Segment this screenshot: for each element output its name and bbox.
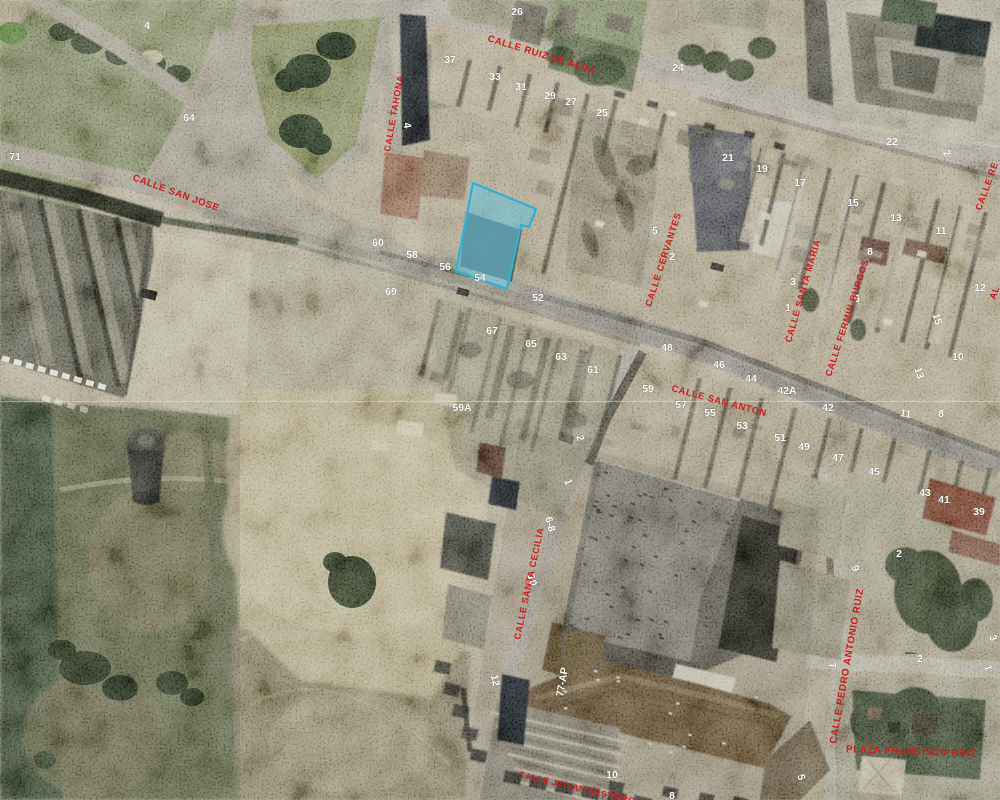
svg-text:46: 46 <box>713 360 725 371</box>
svg-text:41: 41 <box>938 495 950 506</box>
svg-text:21: 21 <box>722 153 734 164</box>
svg-text:39: 39 <box>973 507 985 518</box>
svg-text:1: 1 <box>785 303 791 314</box>
svg-text:22: 22 <box>886 137 898 148</box>
svg-text:59A: 59A <box>452 403 472 414</box>
svg-text:26: 26 <box>511 7 523 18</box>
svg-text:19: 19 <box>756 164 768 175</box>
svg-text:12: 12 <box>974 283 986 294</box>
svg-text:57: 57 <box>675 400 687 411</box>
svg-text:17: 17 <box>794 178 806 189</box>
svg-text:3: 3 <box>790 277 796 288</box>
svg-text:63: 63 <box>555 352 567 363</box>
svg-text:31: 31 <box>515 82 527 93</box>
svg-text:44: 44 <box>745 374 757 385</box>
svg-text:58: 58 <box>406 250 418 261</box>
svg-text:53: 53 <box>736 421 748 432</box>
svg-text:13: 13 <box>890 213 902 224</box>
svg-text:8: 8 <box>938 409 944 420</box>
svg-text:15: 15 <box>847 198 859 209</box>
svg-text:51: 51 <box>774 433 786 444</box>
svg-text:71: 71 <box>9 152 21 163</box>
svg-text:45: 45 <box>868 467 880 478</box>
svg-text:60: 60 <box>372 238 384 249</box>
svg-text:11: 11 <box>936 226 947 237</box>
svg-text:5: 5 <box>652 226 658 237</box>
svg-text:4: 4 <box>144 21 150 32</box>
svg-text:48: 48 <box>661 343 673 354</box>
svg-text:2: 2 <box>896 549 902 560</box>
svg-text:61: 61 <box>587 365 599 376</box>
svg-text:42A: 42A <box>777 386 797 397</box>
svg-text:69: 69 <box>385 287 397 298</box>
svg-text:64: 64 <box>183 113 195 124</box>
svg-text:27: 27 <box>565 97 577 108</box>
svg-text:11: 11 <box>899 408 912 421</box>
svg-text:54: 54 <box>474 273 486 284</box>
svg-text:67: 67 <box>486 326 498 337</box>
svg-text:59: 59 <box>642 384 654 395</box>
svg-text:24: 24 <box>672 63 684 74</box>
svg-text:8: 8 <box>867 247 873 258</box>
svg-text:37: 37 <box>444 55 456 66</box>
svg-text:29: 29 <box>544 91 556 102</box>
svg-text:65: 65 <box>525 339 537 350</box>
svg-text:55: 55 <box>704 408 716 419</box>
svg-text:43: 43 <box>919 488 931 499</box>
svg-text:52: 52 <box>532 293 544 304</box>
svg-text:2: 2 <box>917 654 923 665</box>
svg-text:56: 56 <box>439 262 451 273</box>
svg-text:42: 42 <box>822 403 834 414</box>
svg-text:47: 47 <box>832 453 844 464</box>
svg-text:10: 10 <box>606 770 618 781</box>
svg-text:33: 33 <box>489 72 501 83</box>
svg-text:8: 8 <box>669 791 675 800</box>
svg-text:49: 49 <box>798 442 810 453</box>
svg-text:25: 25 <box>596 108 608 119</box>
svg-text:10: 10 <box>952 352 964 363</box>
